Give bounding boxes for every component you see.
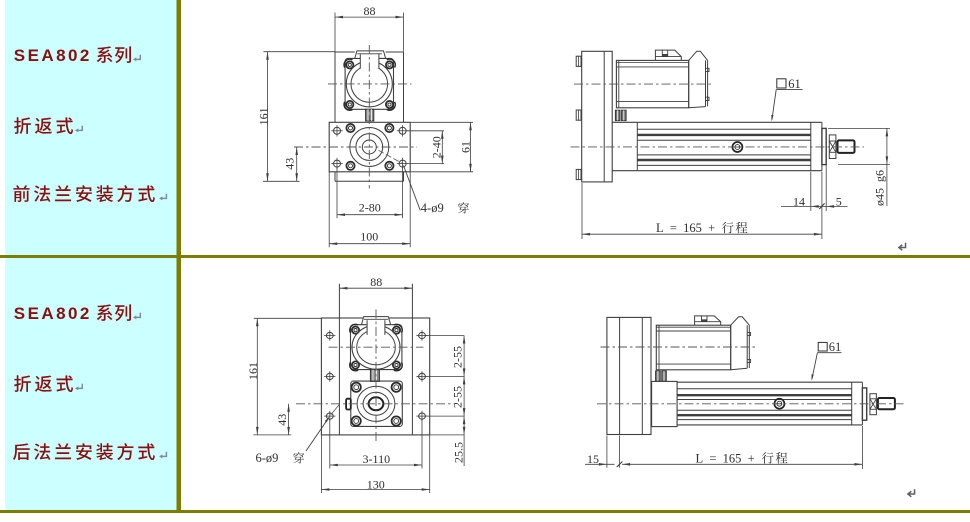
svg-text:3-110: 3-110 bbox=[363, 452, 391, 466]
svg-text:SEA802: SEA802 bbox=[14, 304, 92, 323]
svg-text:6-ø9: 6-ø9 bbox=[256, 451, 279, 465]
svg-text:2-55: 2-55 bbox=[450, 386, 464, 408]
svg-text:L = 165 +: L = 165 + bbox=[696, 451, 755, 465]
svg-text:15: 15 bbox=[587, 452, 599, 466]
svg-text:43: 43 bbox=[282, 158, 296, 170]
svg-text:5: 5 bbox=[836, 194, 842, 208]
svg-text:4-ø9: 4-ø9 bbox=[421, 201, 444, 215]
svg-text:161: 161 bbox=[246, 362, 260, 380]
svg-text:ø45 g6: ø45 g6 bbox=[873, 170, 887, 206]
svg-text:SEA802: SEA802 bbox=[14, 46, 92, 65]
svg-text:2-80: 2-80 bbox=[359, 201, 381, 215]
svg-text:43: 43 bbox=[275, 414, 289, 426]
svg-text:88: 88 bbox=[370, 275, 382, 289]
svg-text:61: 61 bbox=[458, 141, 472, 153]
svg-text:161: 161 bbox=[257, 107, 271, 125]
svg-text:2-40: 2-40 bbox=[430, 136, 444, 158]
svg-text:61: 61 bbox=[829, 340, 842, 354]
svg-text:100: 100 bbox=[360, 230, 378, 244]
svg-text:14: 14 bbox=[793, 194, 805, 208]
svg-text:25.5: 25.5 bbox=[451, 442, 465, 463]
svg-text:130: 130 bbox=[367, 477, 385, 491]
svg-text:2-55: 2-55 bbox=[450, 346, 464, 368]
svg-text:61: 61 bbox=[788, 77, 801, 91]
svg-text:L = 165 +: L = 165 + bbox=[656, 221, 715, 235]
svg-text:88: 88 bbox=[364, 4, 376, 18]
